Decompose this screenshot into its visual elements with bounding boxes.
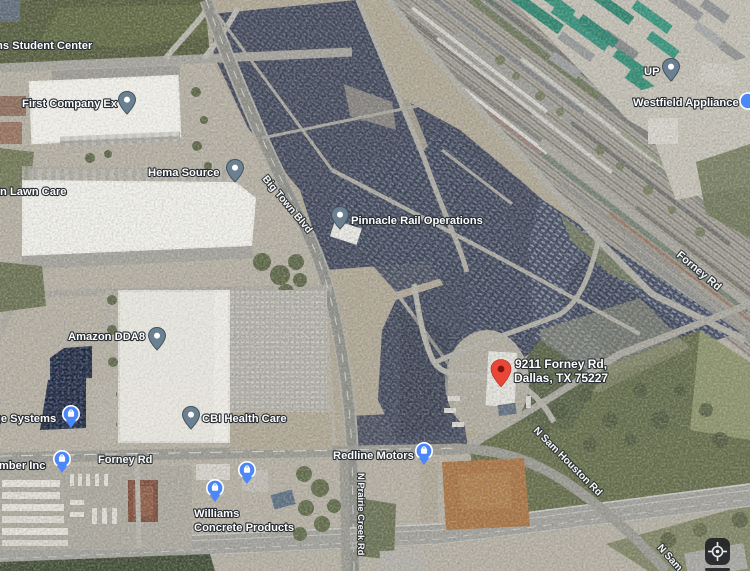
svg-text:Dallas, TX 75227: Dallas, TX 75227 — [514, 371, 608, 385]
svg-text:n Lawn Care: n Lawn Care — [0, 186, 67, 198]
svg-text:First Company Ex: First Company Ex — [22, 98, 118, 110]
svg-text:UP: UP — [644, 66, 660, 78]
svg-text:Concrete Products: Concrete Products — [194, 522, 294, 534]
svg-text:Westfield Appliance: Westfield Appliance — [633, 97, 739, 109]
svg-text:Hema Source: Hema Source — [148, 167, 220, 179]
svg-text:umber Inc: umber Inc — [0, 460, 45, 472]
svg-text:Williams: Williams — [194, 508, 239, 520]
svg-text:CBI Health Care: CBI Health Care — [202, 413, 287, 425]
svg-text:Amazon DDA8: Amazon DDA8 — [68, 331, 145, 343]
svg-text:N Prairie Creek Rd: N Prairie Creek Rd — [356, 473, 367, 556]
svg-text:Forney Rd: Forney Rd — [98, 454, 152, 466]
svg-text:ns Student Center: ns Student Center — [0, 40, 93, 52]
svg-text:9211 Forney Rd,: 9211 Forney Rd, — [515, 357, 607, 371]
svg-text:Pinnacle Rail Operations: Pinnacle Rail Operations — [351, 215, 483, 227]
svg-text:Redline Motors: Redline Motors — [333, 450, 414, 462]
svg-text:ge Systems: ge Systems — [0, 413, 56, 425]
